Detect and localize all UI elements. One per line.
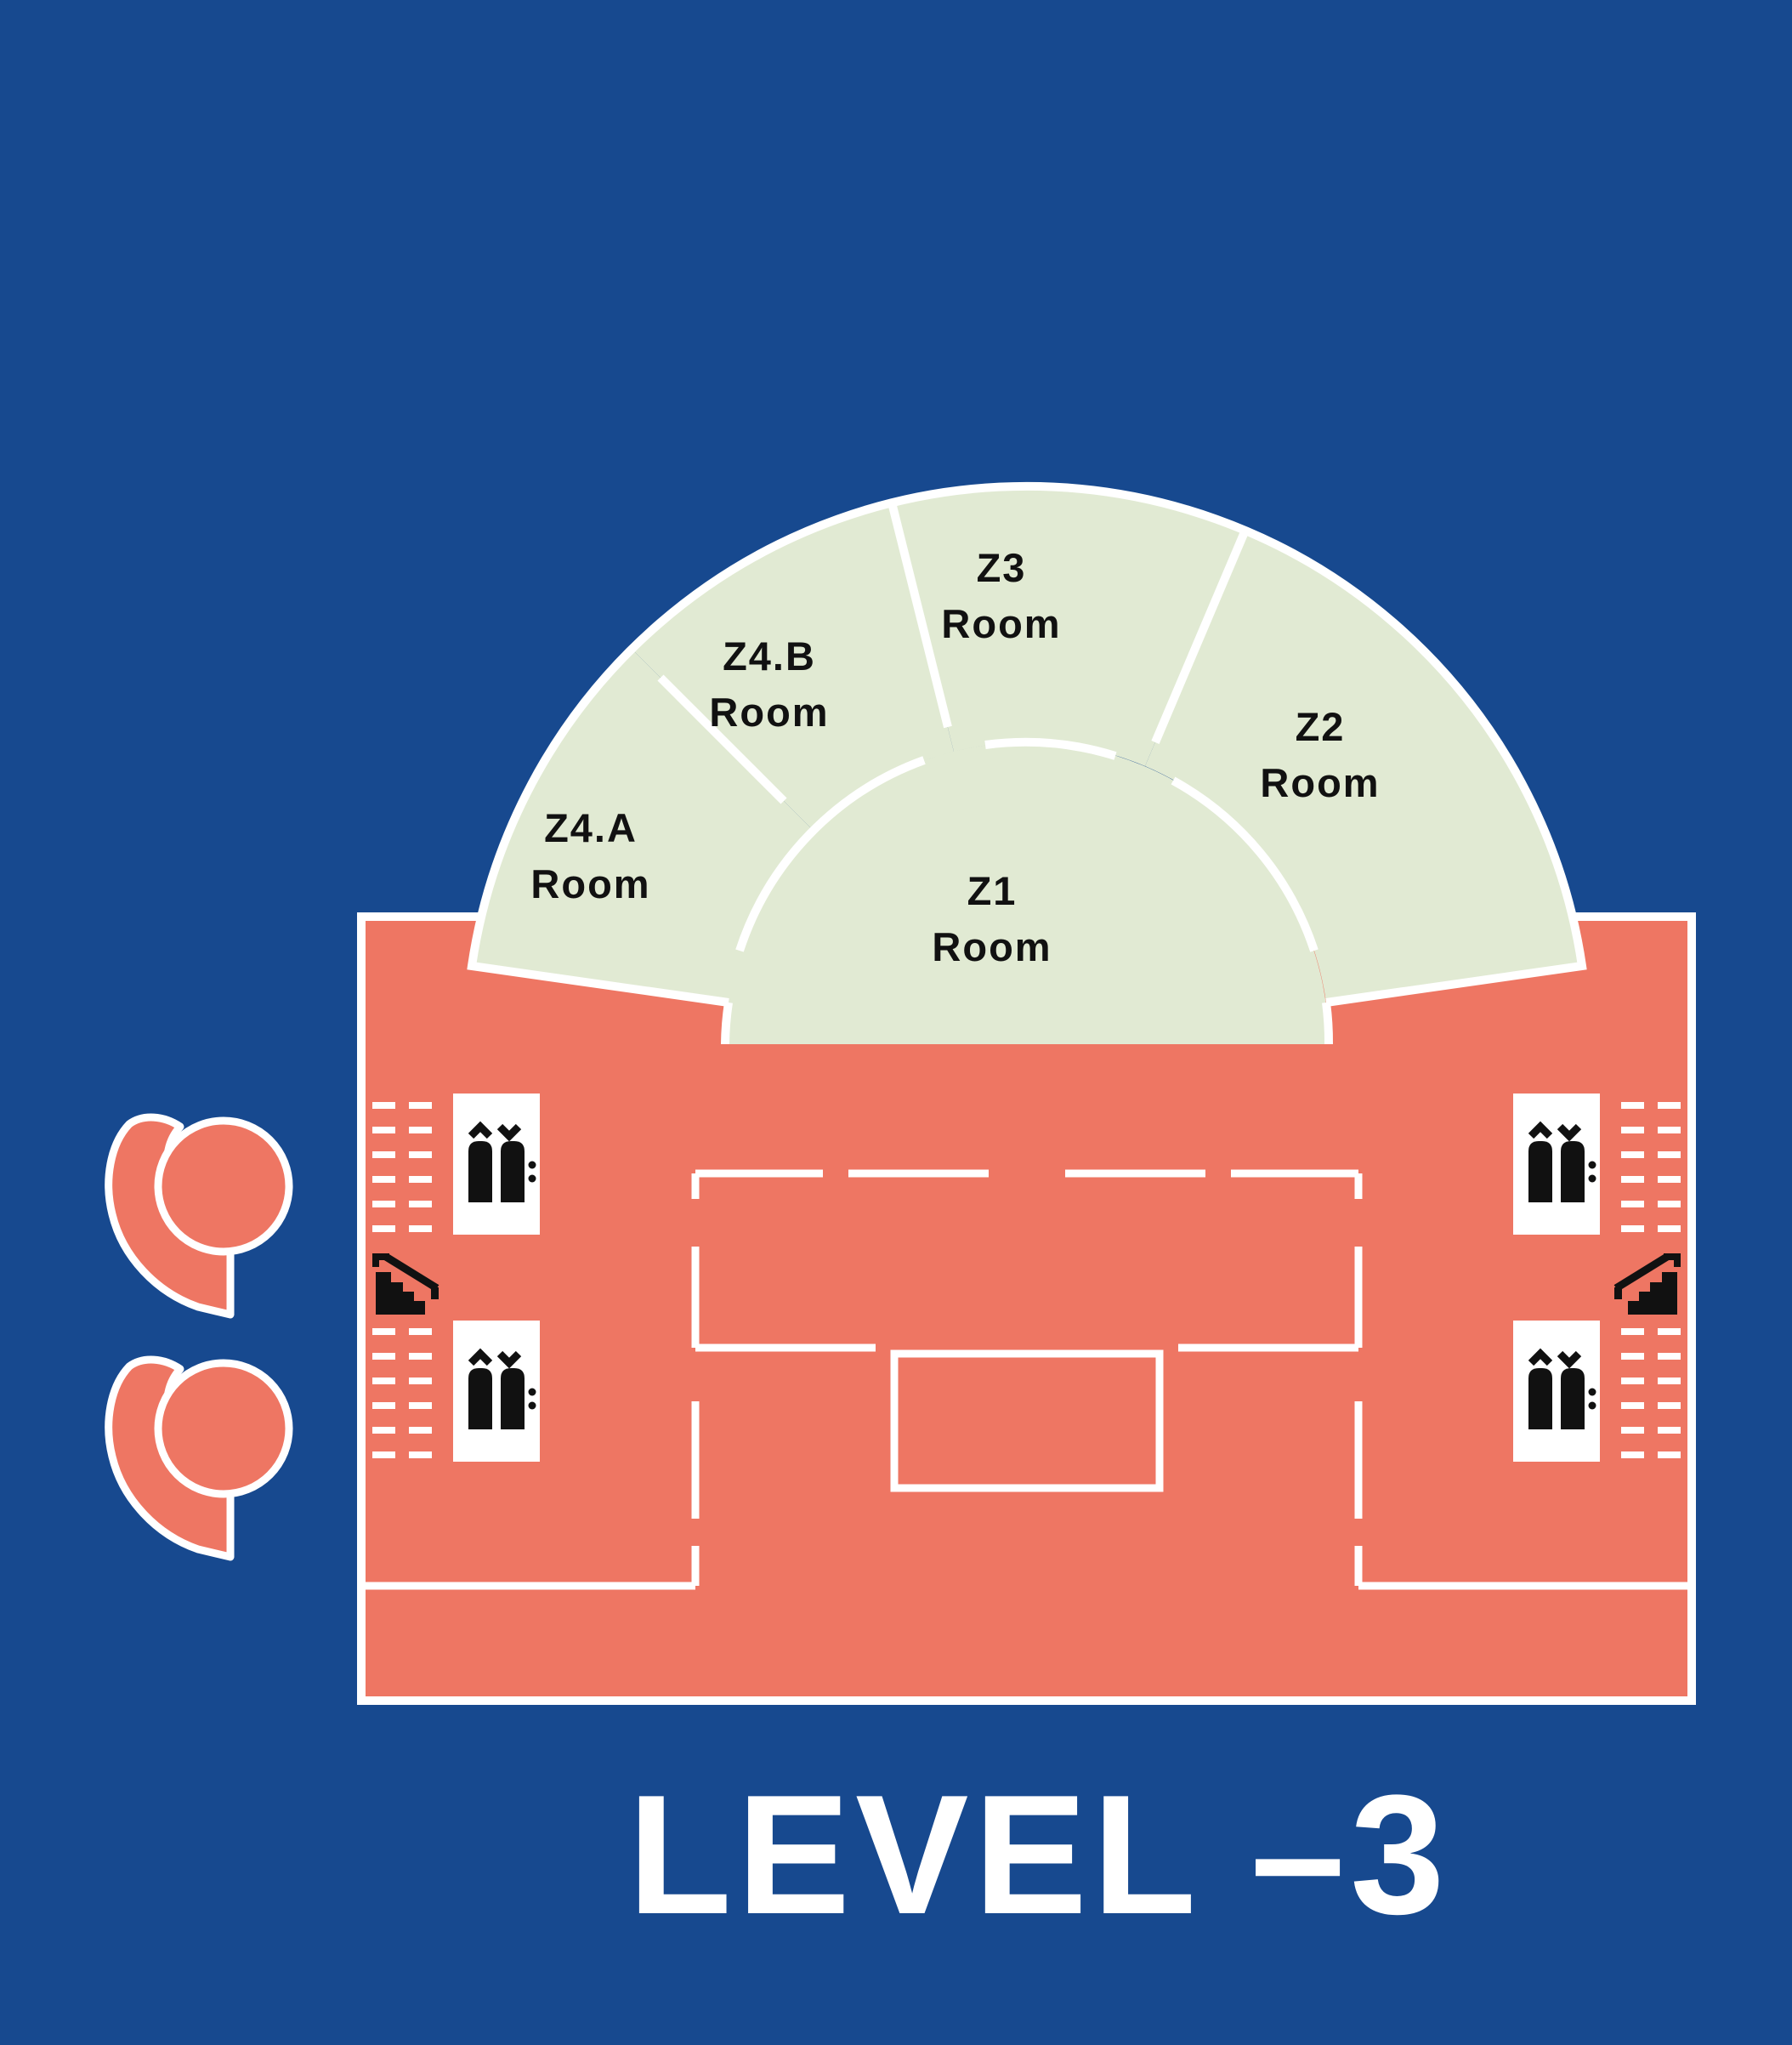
room-z4b-label: Room	[709, 690, 829, 735]
level-title: LEVEL –3	[628, 1760, 1450, 1950]
room-z2-label: Z2	[1296, 704, 1346, 749]
room-z2-label: Room	[1260, 760, 1380, 805]
room-z4a-label: Room	[530, 861, 650, 906]
room-z3-label: Z3	[977, 545, 1027, 590]
elevator-icon	[453, 1321, 540, 1462]
room-z4b-label: Z4.B	[723, 633, 816, 679]
elevator-icon	[453, 1094, 540, 1235]
room-z3-label: Room	[941, 601, 1061, 646]
room-z1-label: Room	[932, 924, 1052, 969]
elevator-icon	[1513, 1094, 1600, 1235]
room-z1-label: Z1	[967, 868, 1018, 913]
room-z4a-label: Z4.A	[544, 805, 638, 850]
floorplan-canvas: Z4.A Room Z4.B Room Z3 Room Z2 Room Z1 R…	[0, 0, 1792, 2045]
elevator-icon	[1513, 1321, 1600, 1462]
